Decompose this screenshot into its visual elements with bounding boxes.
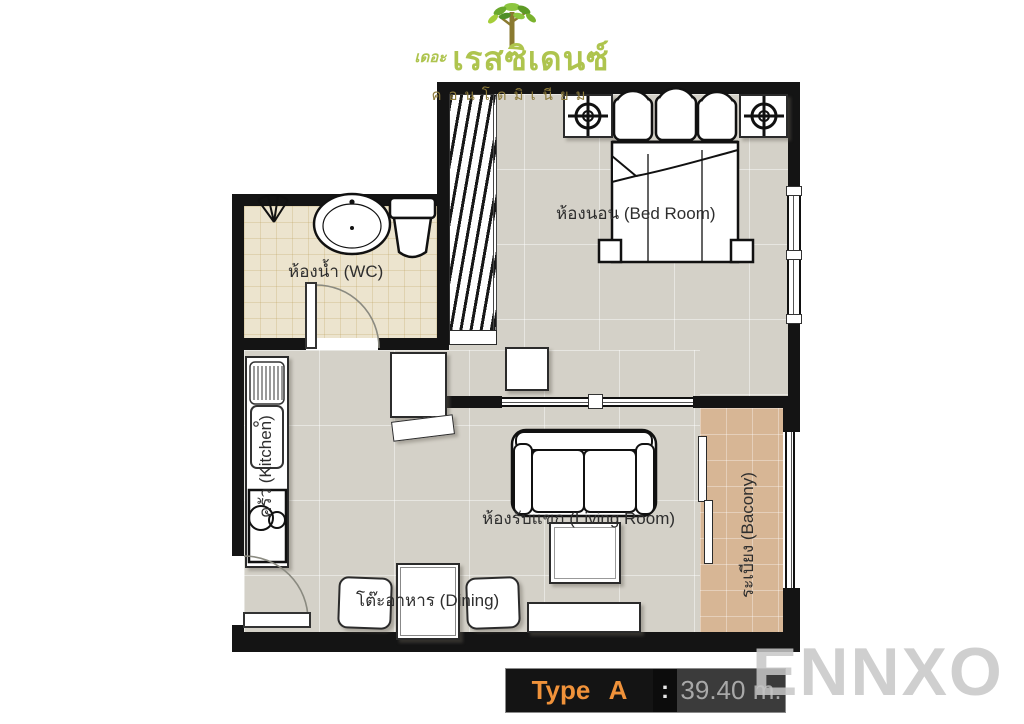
bedroom-cabinet <box>505 347 549 391</box>
wall-partition-right <box>693 396 788 408</box>
balcony-post-top <box>783 408 800 432</box>
shower-icon <box>258 195 288 222</box>
wall-right-upper <box>788 94 800 186</box>
wall-right-lower <box>788 324 800 408</box>
tv-cabinet <box>527 602 641 633</box>
bathroom-label: ห้องน้ำ (WC) <box>288 258 383 285</box>
logo-name: เรสซิเดนซ์ <box>452 32 609 85</box>
window-tick <box>786 314 802 324</box>
separator-colon: : <box>653 669 677 712</box>
toilet-icon <box>390 198 435 257</box>
unit-type-label: Type A <box>532 675 628 706</box>
dining-label: โต๊ะอาหาร (Dining) <box>356 587 499 614</box>
logo-subtitle: คอนโดมิเนียม <box>431 83 592 107</box>
wardrobe <box>449 94 497 332</box>
wall-bathroom-bottom-left <box>244 338 306 350</box>
entrance-door <box>240 550 318 635</box>
balcony-label: ระเบียง (Bacony) <box>734 432 761 598</box>
wardrobe-shelf <box>449 330 497 345</box>
window-tick <box>786 250 802 260</box>
balcony-post-bottom <box>783 588 800 632</box>
bedroom-label: ห้องนอน (Bed Room) <box>556 200 716 227</box>
kitchen-label: ครัว (Kitchen) <box>252 358 279 518</box>
logo-prefix: เดอะ <box>414 45 446 69</box>
sink-icon <box>314 194 390 254</box>
wall-bathroom-bottom-right <box>378 338 449 350</box>
console-desk <box>390 352 447 418</box>
bathroom-fixtures <box>244 188 444 268</box>
wall-bottom <box>232 632 800 652</box>
balcony-railing <box>785 432 795 588</box>
partition-tick <box>588 394 603 409</box>
balcony-sliding-door <box>704 500 713 564</box>
bathroom-door <box>300 278 385 353</box>
watermark: ENNXO <box>752 638 1004 706</box>
living-label: ห้องรับแขก (Living Room) <box>482 505 675 532</box>
unit-type-segment: Type A <box>506 669 653 712</box>
brand-logo: เดอะ เรสซิเดนซ์ คอนโดมิเนียม <box>382 2 642 107</box>
double-bed <box>598 92 756 272</box>
balcony-sliding-door <box>698 436 707 502</box>
floor-plan-page: เดอะ เรสซิเดนซ์ คอนโดมิเนียม <box>0 0 1024 724</box>
wall-bedroom-left <box>437 94 449 194</box>
wall-left-upper <box>232 206 244 556</box>
unit-type-bar: Type A : 39.40 m. <box>505 668 786 713</box>
window-tick <box>786 186 802 196</box>
